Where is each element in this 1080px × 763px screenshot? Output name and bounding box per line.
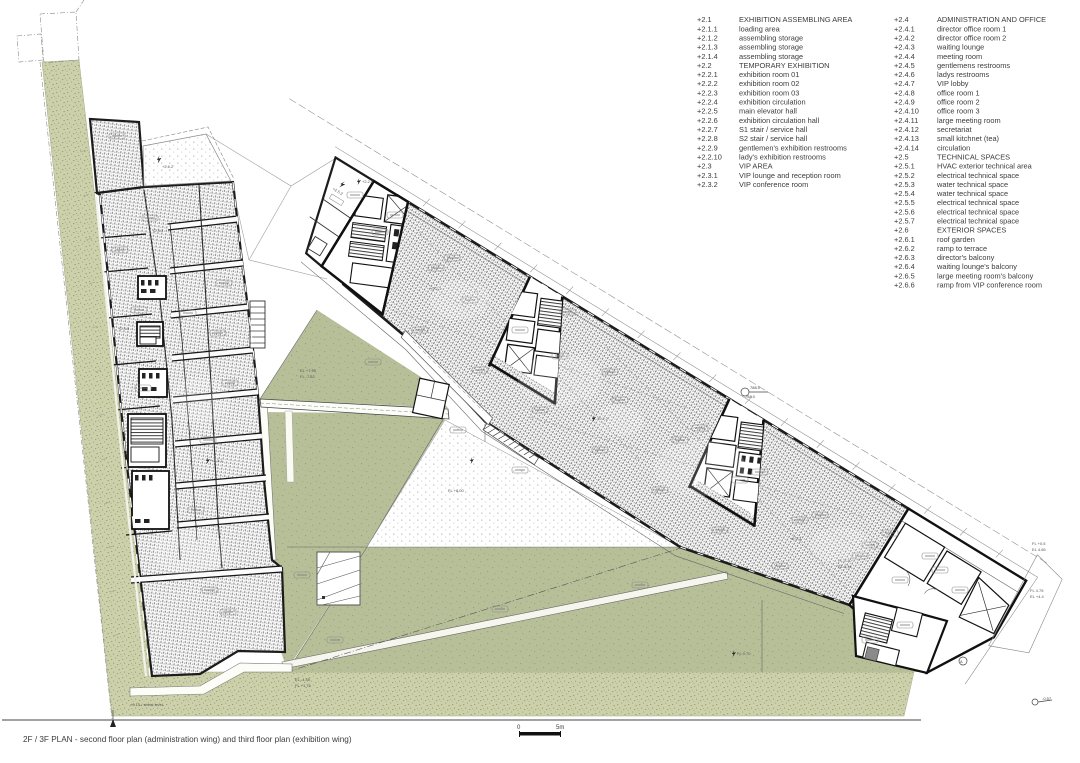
svg-text:+2.2.3: +2.2.3	[697, 88, 718, 97]
svg-text:5m: 5m	[556, 725, 564, 731]
svg-text:+2.5.4: +2.5.4	[894, 189, 915, 198]
svg-text:+2.2.5: +2.2.5	[697, 107, 718, 116]
svg-text:office room 3: office room 3	[937, 107, 980, 116]
svg-text:assembling storage: assembling storage	[739, 34, 803, 43]
svg-text:+2.2.8: +2.2.8	[697, 134, 718, 143]
svg-text:TEMPORARY EXHIBITION: TEMPORARY EXHIBITION	[739, 61, 829, 70]
svg-text:FL 0.70: FL 0.70	[737, 651, 751, 656]
svg-text:FL +1.75: FL +1.75	[295, 683, 312, 688]
svg-text:ramp from VIP conference room: ramp from VIP conference room	[937, 281, 1042, 290]
svg-text:+2.2.6: +2.2.6	[362, 179, 374, 184]
svg-text:exhibition circulation hall: exhibition circulation hall	[739, 116, 819, 125]
svg-text:+2.1.2: +2.1.2	[697, 34, 718, 43]
svg-text:electrical technical space: electrical technical space	[937, 171, 1019, 180]
svg-text:circulation: circulation	[937, 143, 970, 152]
svg-text:+2.4.2: +2.4.2	[894, 34, 915, 43]
svg-text:+2.2.4: +2.2.4	[697, 98, 718, 107]
svg-text:EL 0.34: EL 0.34	[838, 564, 852, 569]
svg-text:+2.2.2: +2.2.2	[697, 79, 718, 88]
svg-text:+2.6.2: +2.6.2	[894, 244, 915, 253]
svg-text:+2.2.6: +2.2.6	[697, 116, 718, 125]
svg-text:small kitchnet (tea): small kitchnet (tea)	[937, 134, 999, 143]
svg-text:electrical technical space: electrical technical space	[937, 198, 1019, 207]
svg-text:+2.3.2: +2.3.2	[697, 180, 718, 189]
svg-text:+2.5.3: +2.5.3	[894, 180, 915, 189]
svg-text:S2 stair / service hall: S2 stair / service hall	[739, 134, 808, 143]
svg-text:exhibition room 03: exhibition room 03	[739, 88, 799, 97]
svg-text:+2.5.1: +2.5.1	[894, 162, 915, 171]
svg-text:assembling storage: assembling storage	[739, 43, 803, 52]
svg-text:+2.4.4: +2.4.4	[894, 52, 915, 61]
svg-text:+2.5.2: +2.5.2	[894, 171, 915, 180]
svg-text:+2.3: +2.3	[697, 162, 712, 171]
svg-text:+2.1.1: +2.1.1	[697, 24, 718, 33]
svg-text:EL +7.95: EL +7.95	[300, 368, 317, 373]
svg-text:+2.1.3: +2.1.3	[697, 43, 718, 52]
svg-text:main elevator hall: main elevator hall	[739, 107, 797, 116]
svg-text:+2.2: +2.2	[697, 61, 712, 70]
svg-text:EL -4.45: EL -4.45	[295, 677, 311, 682]
svg-text:+2.6: +2.6	[894, 226, 909, 235]
svg-text:gentlemen's exhibition restroo: gentlemen's exhibition restrooms	[739, 143, 847, 152]
svg-text:+2.4.5: +2.4.5	[894, 61, 915, 70]
svg-text:electrical technical space: electrical technical space	[937, 217, 1019, 226]
svg-text:loading area: loading area	[739, 24, 781, 33]
svg-text:gentlemens restrooms: gentlemens restrooms	[937, 61, 1010, 70]
svg-text:FL +0.5: FL +0.5	[1032, 541, 1046, 546]
svg-text:water technical space: water technical space	[936, 180, 1008, 189]
svg-text:+2.4: +2.4	[894, 15, 909, 24]
svg-text:EL 4.65: EL 4.65	[1032, 547, 1046, 552]
svg-text:FL +8.00: FL +8.00	[448, 488, 465, 493]
svg-text:director office room 1: director office room 1	[937, 24, 1006, 33]
svg-text:788.0: 788.0	[750, 385, 761, 390]
svg-text:+2.4.11: +2.4.11	[894, 116, 918, 125]
svg-text:+2.5: +2.5	[894, 152, 909, 161]
svg-text:+2.2.10: +2.2.10	[697, 152, 722, 161]
svg-text:+2.5.6: +2.5.6	[894, 207, 915, 216]
svg-text:ADMINISTRATION AND OFFICE: ADMINISTRATION AND OFFICE	[937, 15, 1046, 24]
svg-text:TECHNICAL SPACES: TECHNICAL SPACES	[937, 152, 1010, 161]
svg-text:water technical space: water technical space	[936, 189, 1008, 198]
svg-text:exhibition room 01: exhibition room 01	[739, 70, 799, 79]
svg-text:+2.5.7: +2.5.7	[894, 217, 915, 226]
svg-text:office room 2: office room 2	[937, 98, 980, 107]
svg-text:exhibition circulation: exhibition circulation	[739, 98, 806, 107]
svg-text:assembling storage: assembling storage	[739, 52, 803, 61]
svg-text:+2.4.12: +2.4.12	[894, 125, 919, 134]
svg-text:+2.5.5: +2.5.5	[894, 198, 915, 207]
svg-text:VIP AREA: VIP AREA	[739, 162, 773, 171]
svg-text:+2.6.6: +2.6.6	[894, 281, 915, 290]
svg-text:ladys restrooms: ladys restrooms	[937, 70, 989, 79]
svg-text:+2.4.6: +2.4.6	[894, 70, 915, 79]
svg-text:+2.6.5: +2.6.5	[894, 271, 915, 280]
svg-text:exhibition room 02: exhibition room 02	[739, 79, 799, 88]
svg-text:large meeting room's balcony: large meeting room's balcony	[937, 271, 1034, 280]
svg-text:+2.4.5: +2.4.5	[118, 326, 130, 331]
svg-text:+2.1: +2.1	[697, 15, 712, 24]
svg-text:waiting lounge's balcony: waiting lounge's balcony	[936, 262, 1017, 271]
svg-text:+0.15 / street level: +0.15 / street level	[130, 702, 163, 707]
svg-text:+2.3.1: +2.3.1	[697, 171, 718, 180]
svg-text:roof garden: roof garden	[937, 235, 975, 244]
svg-text:lady's exhibition restrooms: lady's exhibition restrooms	[739, 152, 826, 161]
svg-text:waiting lounge: waiting lounge	[936, 43, 984, 52]
svg-text:+2.6.2: +2.6.2	[162, 164, 174, 169]
svg-text:+2.1.4: +2.1.4	[697, 52, 718, 61]
svg-text:+2.4.10: +2.4.10	[894, 107, 919, 116]
svg-text:HVAC exterior technical area: HVAC exterior technical area	[937, 162, 1033, 171]
svg-text:EXTERIOR SPACES: EXTERIOR SPACES	[937, 226, 1006, 235]
svg-text:EL +4.4: EL +4.4	[1030, 594, 1045, 599]
svg-text:-0.57: -0.57	[1042, 696, 1052, 701]
svg-text:+2.6.1: +2.6.1	[894, 235, 915, 244]
svg-text:788.0: 788.0	[745, 394, 756, 399]
svg-text:ramp to terrace: ramp to terrace	[937, 244, 987, 253]
svg-text:FL 4.75: FL 4.75	[1030, 588, 1044, 593]
svg-text:+2.4.3: +2.4.3	[894, 43, 915, 52]
svg-text:+2.3.1: +2.3.1	[211, 458, 223, 463]
svg-text:+2.2.9: +2.2.9	[697, 143, 718, 152]
svg-text:director's balcony: director's balcony	[937, 253, 995, 262]
svg-text:meeting room: meeting room	[937, 52, 982, 61]
svg-text:VIP lounge and reception room: VIP lounge and reception room	[739, 171, 841, 180]
svg-text:VIP conference room: VIP conference room	[739, 180, 808, 189]
svg-text:large meeting room: large meeting room	[937, 116, 1001, 125]
svg-text:2F / 3F PLAN - second floor pl: 2F / 3F PLAN - second floor plan (admini…	[23, 735, 352, 744]
svg-text:EXHIBITION ASSEMBLING AREA: EXHIBITION ASSEMBLING AREA	[739, 15, 852, 24]
svg-text:electrical technical space: electrical technical space	[937, 207, 1019, 216]
svg-text:+2.4.7: +2.4.7	[894, 79, 915, 88]
svg-text:+2.2.7: +2.2.7	[697, 125, 718, 134]
svg-text:VIP lobby: VIP lobby	[937, 79, 969, 88]
svg-text:+2.6.3: +2.6.3	[894, 253, 915, 262]
svg-text:+2.4.13: +2.4.13	[894, 134, 919, 143]
svg-text:+2.4.8: +2.4.8	[894, 88, 915, 97]
svg-text:+2.4.1: +2.4.1	[894, 24, 915, 33]
svg-text:+2.2.1: +2.2.1	[697, 70, 718, 79]
svg-text:+2.4.3: +2.4.3	[152, 228, 164, 233]
svg-text:office room 1: office room 1	[937, 88, 980, 97]
svg-text:+2.4.14: +2.4.14	[894, 143, 919, 152]
svg-text:secretariat: secretariat	[937, 125, 972, 134]
svg-text:A: A	[960, 659, 963, 664]
svg-text:S1 stair / service hall: S1 stair / service hall	[739, 125, 808, 134]
svg-text:director office room 2: director office room 2	[937, 34, 1006, 43]
svg-text:FL -7.62: FL -7.62	[300, 374, 316, 379]
svg-text:+2.6.4: +2.6.4	[894, 262, 915, 271]
svg-text:+2.4.9: +2.4.9	[894, 98, 915, 107]
svg-text:+2.2.3: +2.2.3	[790, 536, 802, 541]
